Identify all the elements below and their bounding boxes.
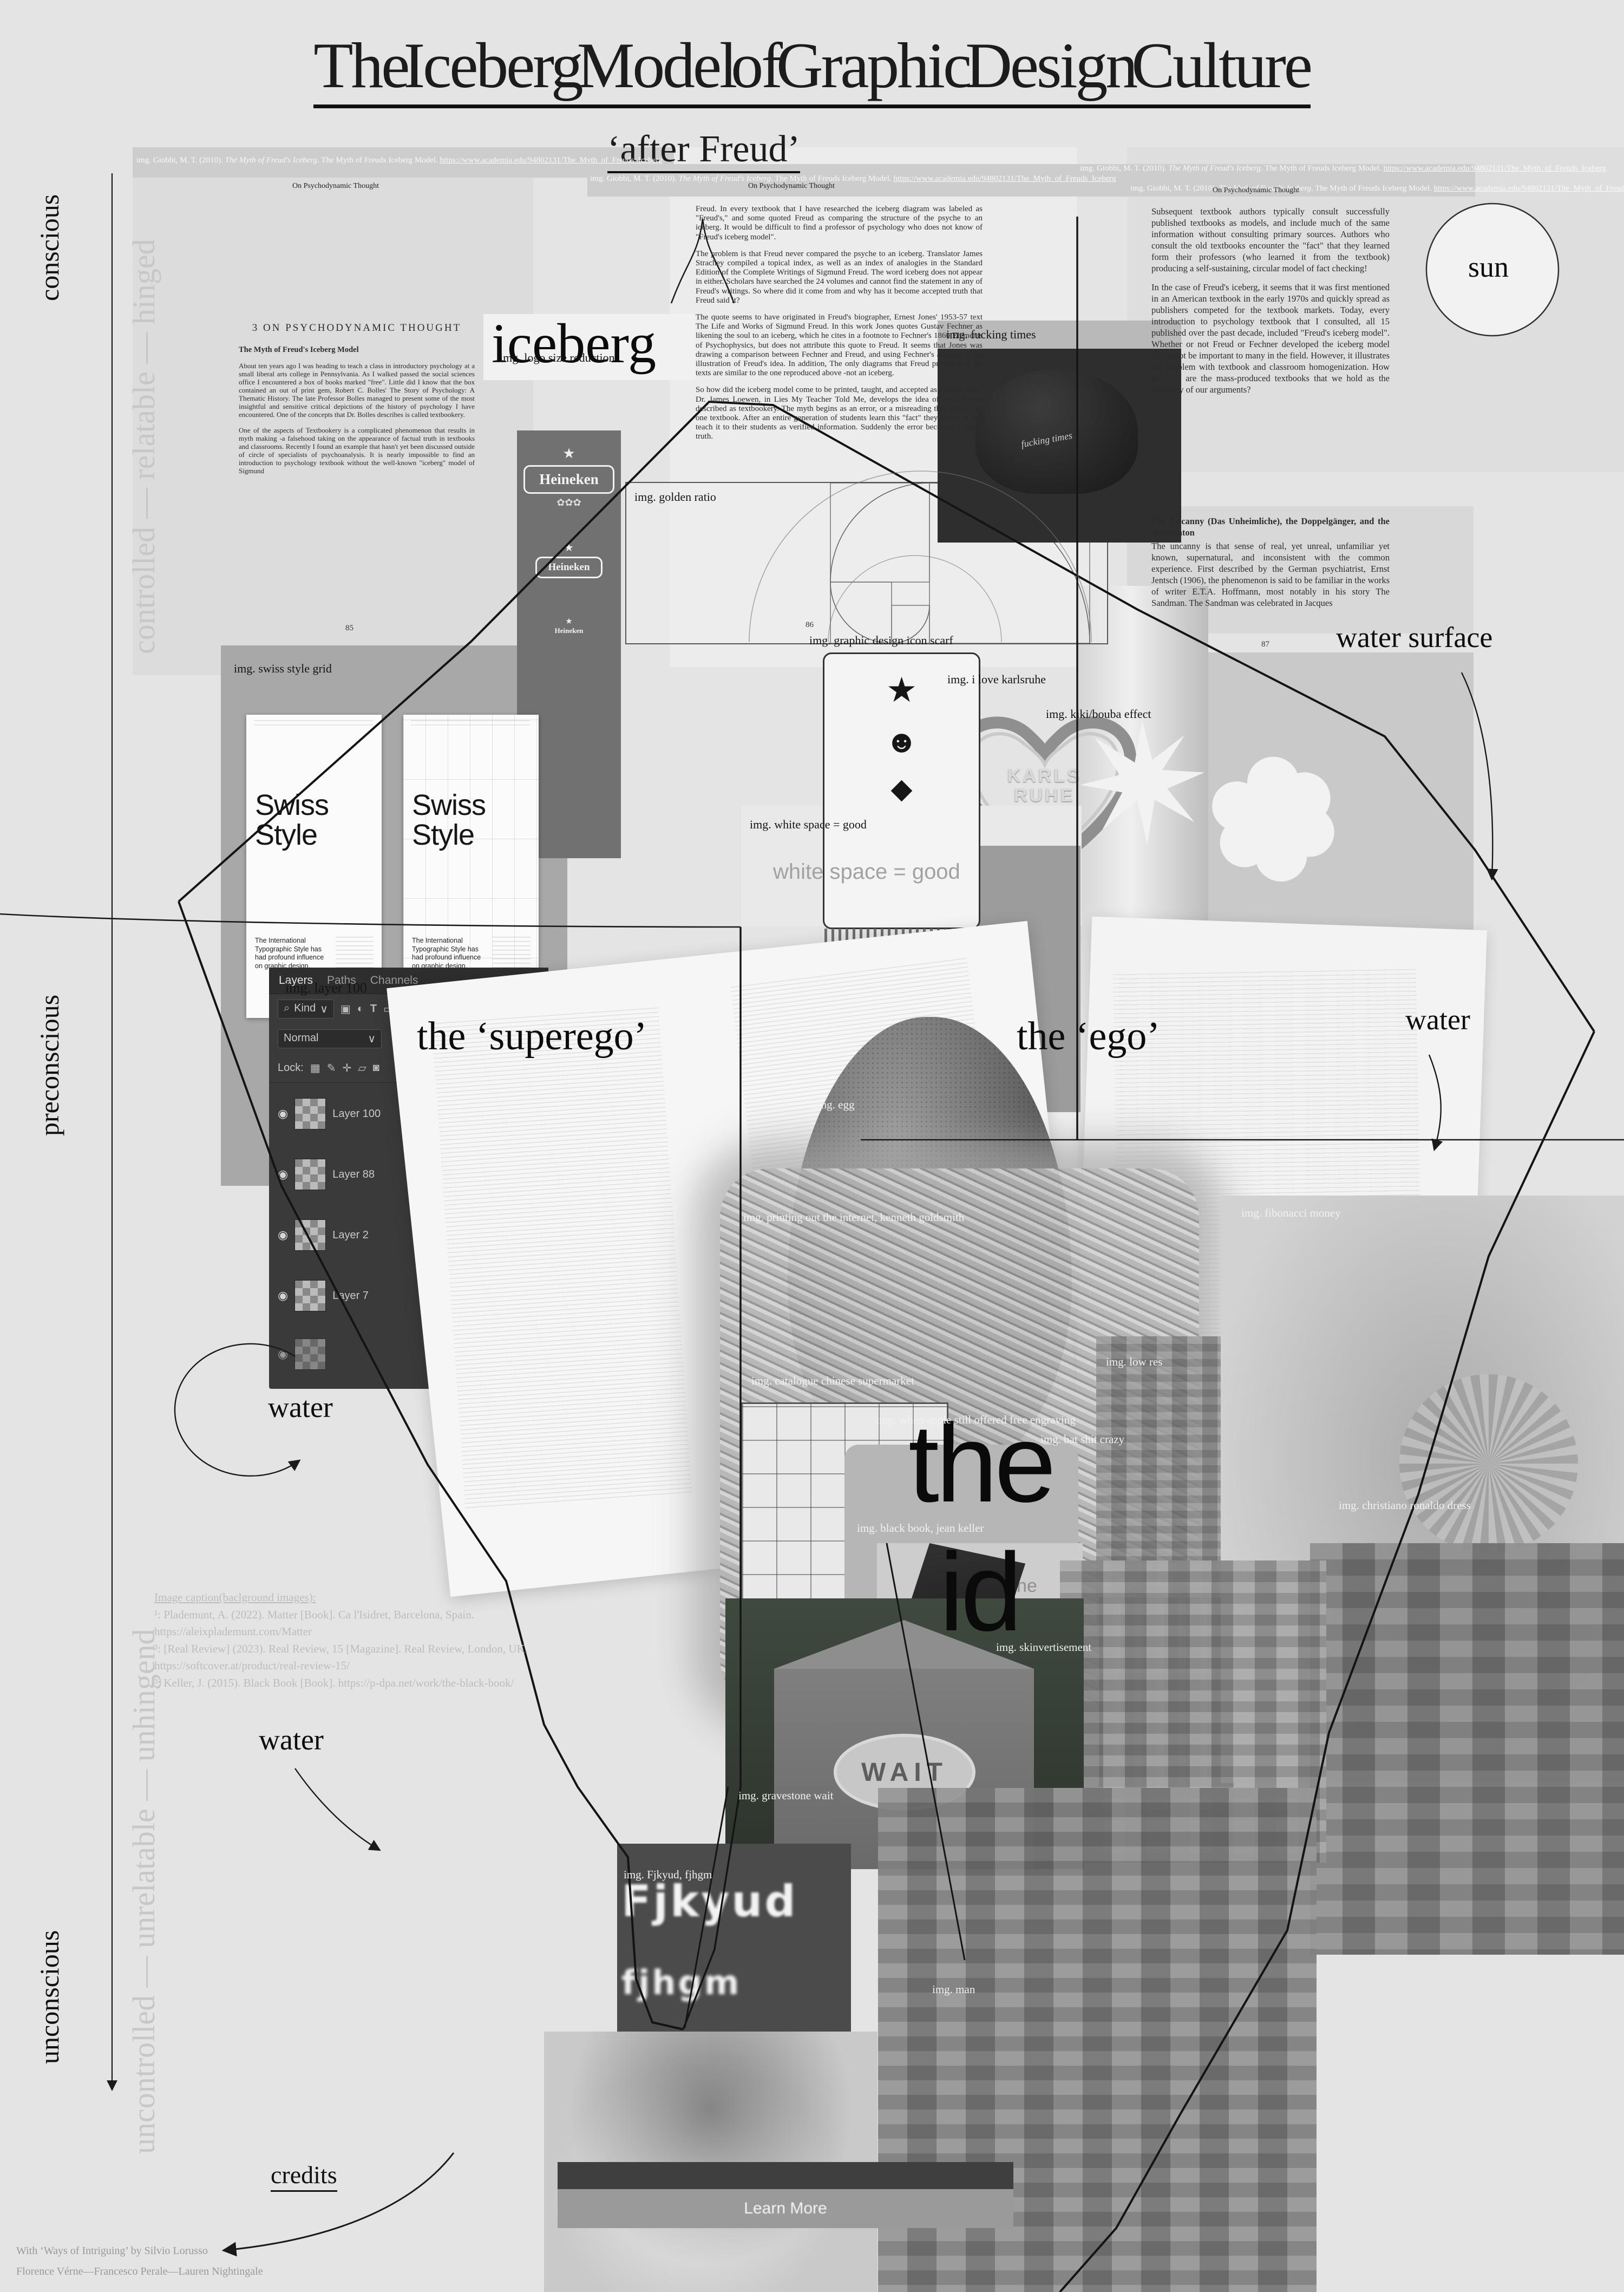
swiss-body-text: The International Typographic Style has … [255, 937, 325, 971]
caption-item: ¹: Plademunt, A. (2022). Matter [Book]. … [154, 1607, 544, 1641]
label-scarf: img. graphic design icon scarf [809, 634, 953, 648]
label-layer-100: img. layer 100 [285, 980, 367, 996]
article-paragraph: The quote seems to have originated in Fr… [696, 313, 983, 378]
label-ronaldo: img. christiano ronaldo dress [1339, 1499, 1471, 1512]
poster: ★ Heineken ✿✿✿ ★ Heineken ★ Heineken fuc… [0, 0, 1624, 2292]
white-space-figure-text: white space = good [773, 860, 960, 884]
page-number-87: 87 [1261, 640, 1269, 649]
label-skinvertisement: img. skinvertisement [996, 1641, 1091, 1654]
superego-annotation: the ‘superego’ [417, 1014, 647, 1060]
footer-credit-line-2: Florence Vérne—Francesco Perale—Lauren N… [16, 2265, 263, 2278]
citation-link[interactable]: https://www.academia.edu/94802131/The_My… [1434, 184, 1624, 193]
label-kiki-bouba: img. kiki/bouba effect [1046, 707, 1151, 721]
water-surface-annotation: water surface [1336, 621, 1492, 654]
label-white-space: img. white space = good [750, 818, 867, 832]
visibility-eye-icon[interactable]: ◉ [278, 1347, 288, 1361]
article-paragraph: Subsequent textbook authors typically co… [1151, 206, 1390, 274]
article-paragraph: So how did the iceberg model come to be … [696, 386, 983, 441]
chevron-down-icon: ∨ [368, 1032, 376, 1046]
blend-mode-select[interactable]: Normal∨ [278, 1029, 382, 1048]
article-column-1: 3 ON PSYCHODYNAMIC THOUGHT The Myth of F… [239, 324, 475, 482]
label-bat: img. bat shit crazy [1040, 1433, 1124, 1446]
kind-filter-select[interactable]: ⌕ Kind∨ [278, 1000, 334, 1018]
lock-label: Lock: [278, 1062, 304, 1074]
page-number-86: 86 [806, 621, 814, 630]
caption-item: ²: [Real Review] (2023). Real Review, 15… [154, 1641, 544, 1675]
cap-embroidery-text: fucking times [1020, 430, 1073, 450]
tab-channels[interactable]: Channels [370, 974, 418, 987]
swiss-body-text: The International Typographic Style has … [412, 937, 482, 971]
credits-arrow [225, 2153, 454, 2250]
scarf-glyph-diamond: ◆ [824, 773, 979, 805]
money-fan-shape [1399, 1374, 1578, 1553]
axis-unconscious: unconscious [34, 1930, 65, 2064]
footer-credit-line-1: With ‘Ways of Intriguing’ by Silvio Loru… [16, 2245, 208, 2257]
label-apple: img. when apple still offered free engra… [876, 1413, 1076, 1427]
label-black-book: img. black book, jean keller [857, 1522, 984, 1535]
wait-text: WAIT [861, 1758, 948, 1787]
iceberg-annotation: iceberg [492, 311, 656, 376]
uncanny-paragraph: The uncanny is that sense of real, yet u… [1151, 540, 1390, 609]
lock-transparency-icon[interactable]: ▦ [310, 1061, 320, 1075]
ad-button-bar: Learn More [558, 2189, 1013, 2228]
label-printing: img. printing out the internet, kenneth … [743, 1211, 964, 1224]
swiss-title-line2: Style [412, 820, 486, 850]
swiss-title-line2: Style [255, 820, 329, 850]
lock-move-icon[interactable]: ✛ [342, 1061, 351, 1075]
section-heading: 3 ON PSYCHODYNAMIC THOUGHT [239, 324, 475, 332]
swiss-title-line1: Swiss [412, 791, 486, 820]
label-man: img. man [932, 1983, 975, 1996]
water-annotation-low: water [259, 1723, 324, 1756]
lock-all-icon[interactable]: ◙ [373, 1062, 379, 1074]
credits-annotation[interactable]: credits [271, 2160, 337, 2192]
article-paragraph: In the case of Freud's iceberg, it seems… [1151, 282, 1390, 395]
column-header-mid: On Psychodynamic Thought [748, 182, 835, 191]
citation-right-2: img. Giobbi, M. T. (2010). The Myth of F… [1130, 184, 1624, 193]
heineken-badge-large: Heineken [523, 465, 614, 494]
star-icon: ★ [517, 541, 621, 554]
id-annotation-id: id [939, 1537, 1019, 1648]
layer-name: Layer 7 [332, 1290, 369, 1302]
label-fibonacci: img. fibonacci money [1241, 1206, 1341, 1220]
water-annotation-right: water [1405, 1003, 1470, 1036]
label-supermarket: img. catalogue chinese supermarket [751, 1374, 914, 1388]
ronaldo-dress-image [1310, 1543, 1624, 1955]
visibility-eye-icon[interactable]: ◉ [278, 1289, 288, 1303]
citation-link[interactable]: https://www.academia.edu/94802131/The_My… [894, 174, 1116, 183]
ad-dark-bar [558, 2162, 1013, 2189]
layer-name: Layer 88 [332, 1168, 375, 1181]
article-paragraph: About ten years ago I was heading to tea… [239, 362, 475, 419]
search-icon: ⌕ [284, 1002, 290, 1016]
article-paragraph: Freud. In every textbook that I have res… [696, 205, 983, 242]
filter-type-icon[interactable]: T [370, 1003, 377, 1015]
citation-link[interactable]: https://www.academia.edu/94802131/The_My… [1384, 164, 1606, 173]
swiss-title-line1: Swiss [255, 791, 329, 820]
star-icon: ★ [517, 446, 621, 462]
filter-adjustment-icon[interactable]: ◐ [357, 1003, 364, 1015]
article-column-2: Freud. In every textbook that I have res… [696, 205, 983, 449]
sun-annotation: sun [1468, 250, 1509, 284]
visibility-eye-icon[interactable]: ◉ [278, 1228, 288, 1242]
label-logo-size: img. logo size reduction [500, 351, 615, 365]
article-paragraph: The problem is that Freud never compared… [696, 250, 983, 305]
visibility-eye-icon[interactable]: ◉ [278, 1167, 288, 1181]
label-swiss-grid: img. swiss style grid [234, 662, 332, 676]
caption-heading: Image caption(baclground images): [154, 1589, 544, 1607]
layer-thumbnail [294, 1219, 326, 1251]
label-egg: img. egg [815, 1098, 855, 1112]
water-annotation-mid: water [268, 1390, 333, 1424]
lock-artboard-icon[interactable]: ▱ [358, 1061, 366, 1075]
heineken-badge-medium: Heineken [535, 557, 603, 578]
citation-mid: img. Giobbi, M. T. (2010). The Myth of F… [590, 174, 1116, 184]
label-low-res: img. low res [1106, 1355, 1162, 1369]
column-header-right: On Psychodynamic Thought [1213, 186, 1299, 195]
layer-thumbnail [294, 1280, 326, 1311]
glitch-word-1: Fjkyud [621, 1876, 798, 1927]
citation-left: img. Giobbi, M. T. (2010). The Myth of F… [136, 156, 663, 165]
layer-name: Layer 100 [332, 1108, 381, 1120]
image-caption-block: Image caption(baclground images): ¹: Pla… [154, 1589, 544, 1692]
chevron-down-icon: ∨ [320, 1002, 328, 1016]
layer-name: Layer 2 [332, 1229, 369, 1242]
article-column-3: Subsequent textbook authors typically co… [1151, 206, 1390, 403]
scarf-glyph-face: ☻ [824, 723, 979, 760]
axis-preconscious: preconscious [34, 995, 65, 1136]
star-icon: ★ [517, 616, 621, 626]
label-fucking-times: img. fucking times [946, 328, 1036, 342]
visibility-eye-icon[interactable]: ◉ [278, 1107, 288, 1121]
axis-uncontrolled: uncontrolled — unrelatable — unhingend [126, 1629, 162, 2154]
column-header-left: On Psychodynamic Thought [292, 182, 379, 191]
heineken-badge-small: Heineken [517, 626, 621, 635]
article-subhead: The Myth of Freud's Iceberg Model [239, 346, 475, 354]
uncanny-heading: The Uncanny (Das Unheimliche), the Doppe… [1151, 515, 1390, 538]
poster-title: The Iceberg Model of Graphic Design Cult… [0, 28, 1624, 103]
layer-thumbnail [294, 1159, 326, 1190]
ego-annotation: the ‘ego’ [1017, 1014, 1160, 1060]
filter-image-icon[interactable]: ▣ [340, 1002, 351, 1016]
label-gravestone: img. gravestone wait [738, 1789, 834, 1803]
label-glitch: img. Fjkyud, fjhgm [624, 1868, 712, 1882]
axis-conscious: conscious [34, 194, 65, 301]
lock-paint-icon[interactable]: ✎ [327, 1061, 336, 1075]
axis-controlled: controlled — relatable — hinged [126, 239, 162, 654]
label-karlsruhe: img. i love karlsruhe [947, 672, 1046, 687]
label-golden-ratio: img. golden ratio [634, 490, 716, 504]
glitch-word-2: fjhgm [621, 1963, 741, 2002]
citation-link[interactable]: https://www.academia.edu/94802131/The_My… [440, 156, 663, 165]
ornament-icon: ✿✿✿ [517, 497, 621, 508]
citation-right-1: img. Giobbi, M. T. (2010). The Myth of F… [1080, 164, 1624, 173]
page-number-85: 85 [345, 624, 353, 633]
learn-more-button[interactable]: Learn More [744, 2199, 827, 2218]
article-paragraph: One of the aspects of Textbookery is a c… [239, 426, 475, 475]
scarf-image: ★ ☻ ◆ [823, 652, 980, 929]
kiki-star-shape [1080, 720, 1204, 845]
uncanny-block: The Uncanny (Das Unheimliche), the Doppe… [1151, 515, 1390, 616]
layer-thumbnail [294, 1338, 326, 1370]
cap-shape: fucking times [975, 369, 1138, 494]
caption-item: ³: Keller, J. (2015). Black Book [Book].… [154, 1675, 544, 1692]
bouba-flower-shape [1208, 752, 1338, 881]
water-low-arrow [295, 1768, 379, 1850]
layer-thumbnail [294, 1098, 326, 1129]
